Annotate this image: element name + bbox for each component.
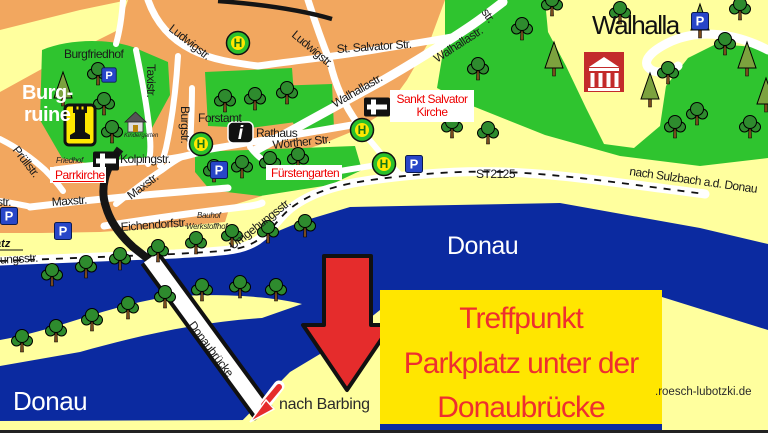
street-label-umgehungsstr-fragment: hungsstr.: [0, 251, 38, 267]
parrkirche-label: Parrkirche: [55, 168, 106, 182]
street-label-burgstr: Burgstr.: [178, 106, 192, 144]
info-glyph: i: [238, 123, 244, 144]
walhalla-label: Walhalla: [592, 10, 681, 40]
salvator-church-icon: [364, 98, 390, 117]
salvator-label-1: Sankt Salvator: [396, 92, 468, 106]
parking-icon: [211, 162, 228, 179]
bus-stop-icon: [227, 32, 250, 55]
bauhof-label: Bauhof: [197, 211, 222, 220]
parking-icon: [102, 68, 116, 82]
burgfriedhof-label: Burgfriedhof: [64, 47, 125, 61]
burgruine-label-2: ruine: [24, 104, 71, 126]
street-label-taxistr: Taxistr.: [144, 64, 158, 98]
annotation-line-2: Parkplatz unter der: [404, 347, 639, 380]
donau-label-lower: Donau: [13, 386, 87, 416]
donau-label-upper: Donau: [447, 232, 518, 260]
friedhof-label: Friedhof: [56, 156, 84, 165]
street-label-fragment-left: str.: [0, 195, 11, 209]
platz-fragment-label: latz: [0, 238, 11, 250]
walhalla-icon: [584, 52, 624, 92]
watermark-label: .roesch-lubotzki.de: [655, 386, 752, 398]
street-label-st2125: ST2125: [476, 167, 516, 181]
map-canvas: P H: [0, 0, 768, 433]
rathaus-label: Rathaus: [256, 126, 298, 140]
parking-icon: [55, 223, 72, 240]
meeting-point-annotation: Treffpunkt Parkplatz unter der Donaubrüc…: [380, 290, 662, 424]
kindergarten-label: Kindergarten: [124, 133, 159, 139]
annotation-line-3: Donaubrücke: [437, 391, 605, 424]
info-icon: i: [228, 122, 253, 144]
werkstoffhof-label: Werkstoffhof: [186, 222, 228, 231]
forstamt-label: Forstamt: [198, 111, 243, 125]
street-label-maxstr-1: Maxstr.: [51, 193, 87, 209]
burgruine-label-1: Burg-: [22, 82, 73, 104]
salvator-label-2: Kirche: [416, 105, 448, 119]
bus-stop-icon: [373, 153, 396, 176]
annotation-line-1: Treffpunkt: [459, 302, 584, 335]
parking-icon: [1, 208, 18, 225]
bus-stop-icon: [351, 119, 374, 142]
city-map: P H: [0, 0, 768, 433]
street-label-kolpingstr: Kolpingstr.: [120, 152, 171, 166]
parking-icon: [692, 13, 709, 30]
fuerstengarten-label: Fürstengarten: [271, 166, 339, 180]
direction-label-barbing: nach Barbing: [279, 396, 370, 413]
parking-icon: [406, 156, 423, 173]
